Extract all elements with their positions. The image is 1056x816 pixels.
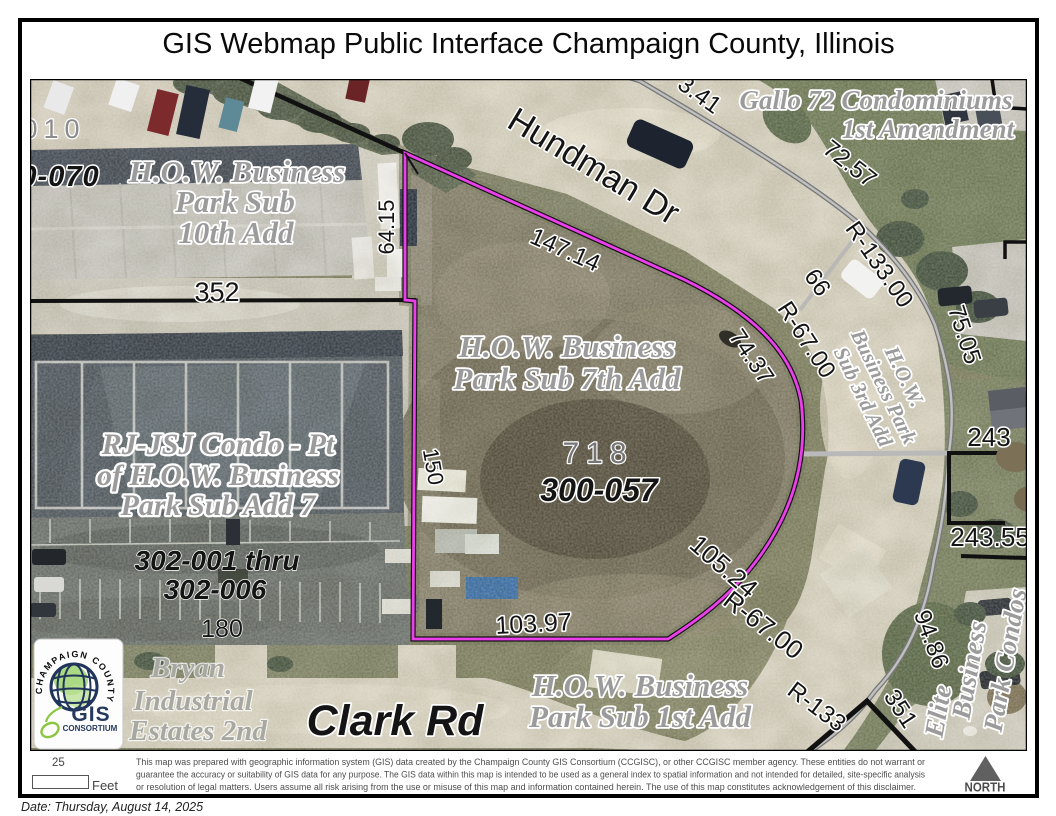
svg-text:This map was prepared with geo: This map was prepared with geographic in… [136,757,925,767]
svg-text:NORTH: NORTH [965,780,1006,795]
svg-text:or resolution of legal matters: or resolution of legal matters. Users as… [136,782,916,792]
svg-text:guarantee the accuracy or suit: guarantee the accuracy or suitability of… [136,770,925,780]
